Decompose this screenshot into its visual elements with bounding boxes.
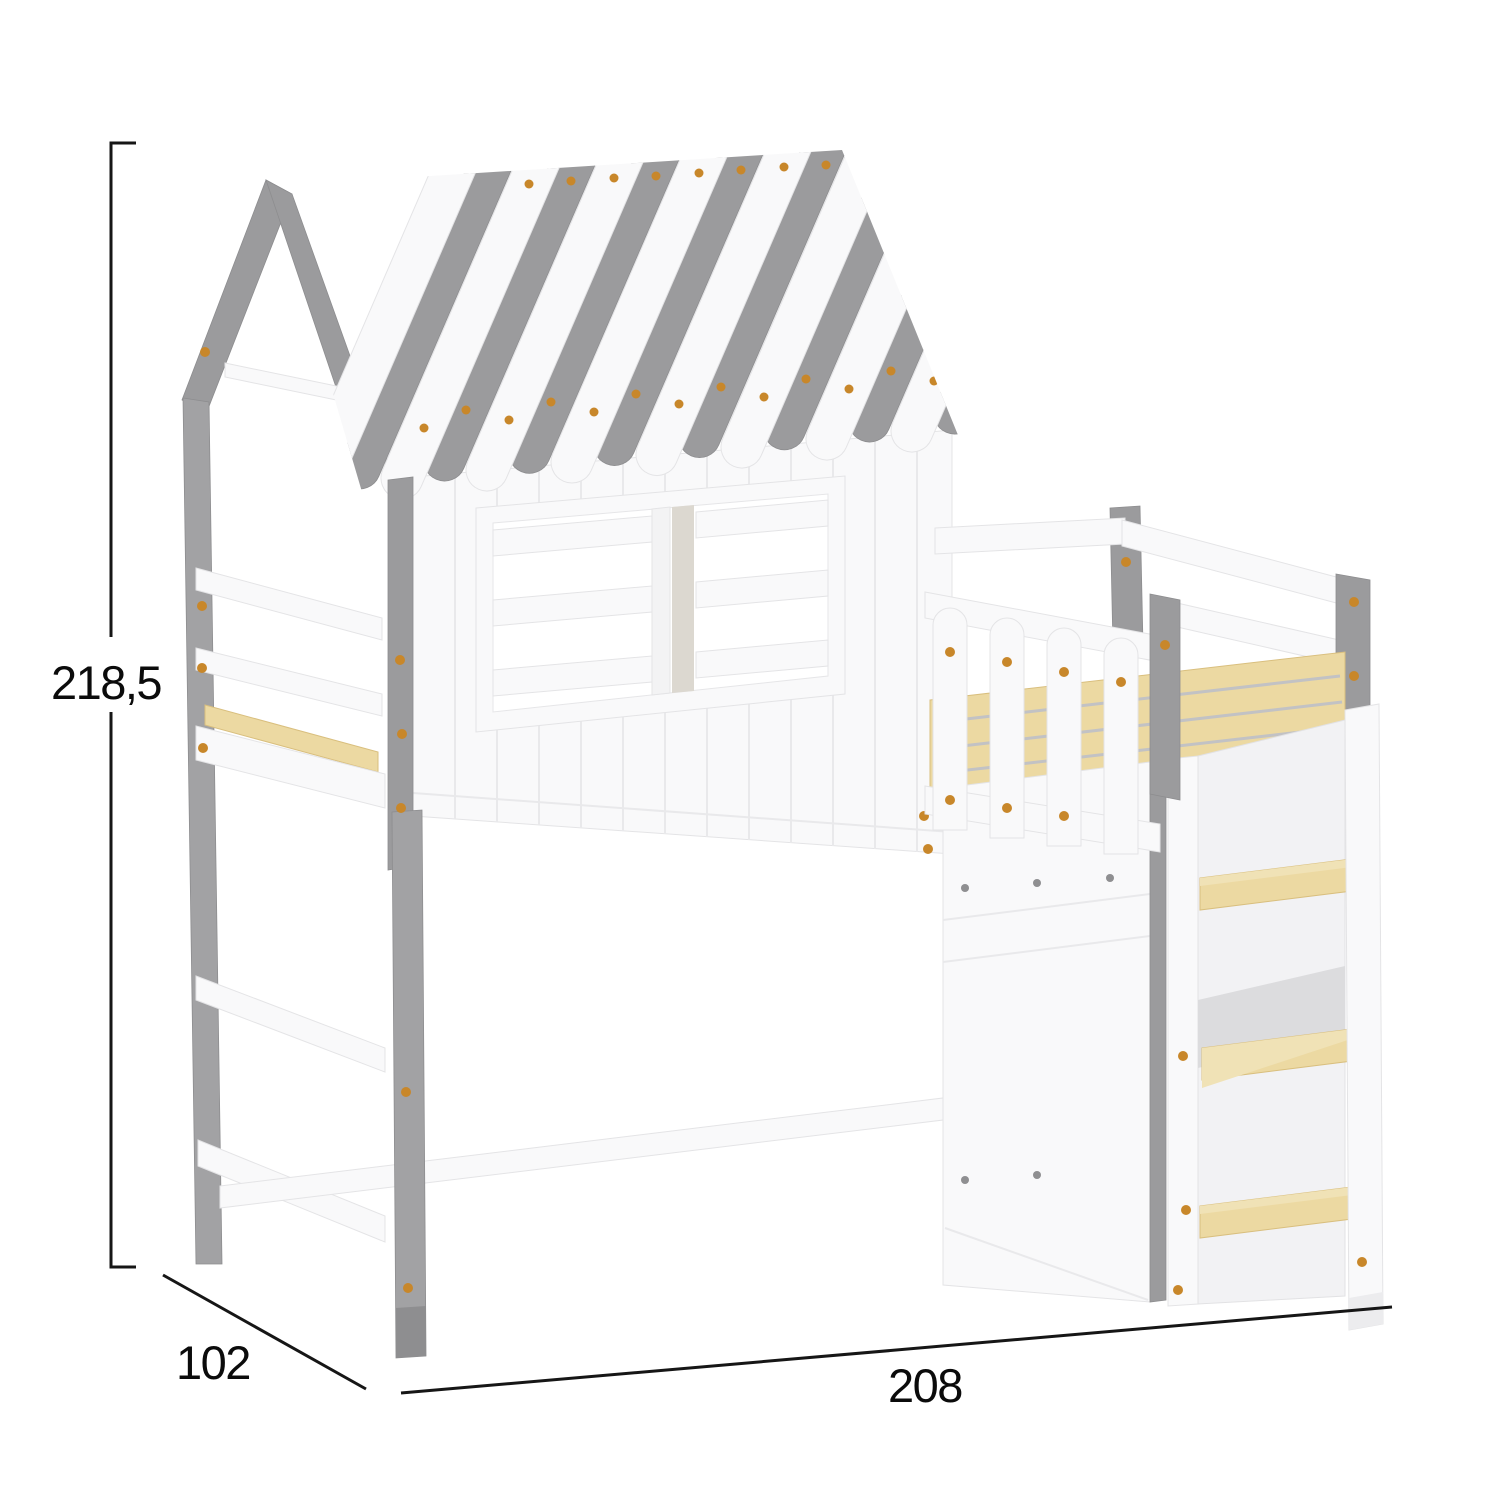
fence-end-post	[1150, 594, 1180, 800]
right-side-top-rail	[1122, 520, 1340, 604]
left-lower-rails	[196, 976, 943, 1242]
front-left-leg-foot	[396, 1306, 426, 1358]
dimension-depth: 102	[163, 1275, 366, 1389]
height-dimension-line	[111, 712, 136, 1267]
ladder-right-stringer	[1345, 704, 1383, 1330]
bed-dimension-diagram: 218,5 102 208	[0, 0, 1499, 1500]
cabinet-front-post	[1168, 756, 1198, 1306]
height-dimension-line	[111, 143, 136, 637]
fence-picket	[1104, 638, 1138, 854]
screw-dot	[200, 347, 210, 357]
front-left-leg	[392, 810, 426, 1358]
roof	[296, 56, 1125, 507]
window-mullion-shade	[672, 505, 694, 693]
back-top-rail	[935, 518, 1125, 554]
width-dimension-label: 208	[888, 1359, 962, 1412]
diagram-canvas: 218,5 102 208	[0, 0, 1499, 1500]
long-bottom-rail	[220, 1098, 943, 1208]
window	[476, 476, 845, 732]
left-guard-rails	[196, 568, 385, 808]
screw-dot	[923, 844, 933, 854]
roof-slat	[891, 74, 1082, 452]
height-dimension-label: 218,5	[51, 656, 161, 709]
dimension-height: 218,5	[51, 143, 161, 1267]
house-front-wall	[413, 430, 952, 854]
left-rail-top	[196, 568, 382, 640]
depth-dimension-label: 102	[176, 1336, 250, 1389]
dimension-width: 208	[401, 1307, 1392, 1412]
back-left-post	[183, 398, 222, 1264]
left-cross-rail-upper	[196, 976, 385, 1072]
roof-slat	[934, 56, 1125, 434]
left-rail-mid	[196, 648, 382, 716]
window-mullion	[652, 507, 670, 695]
